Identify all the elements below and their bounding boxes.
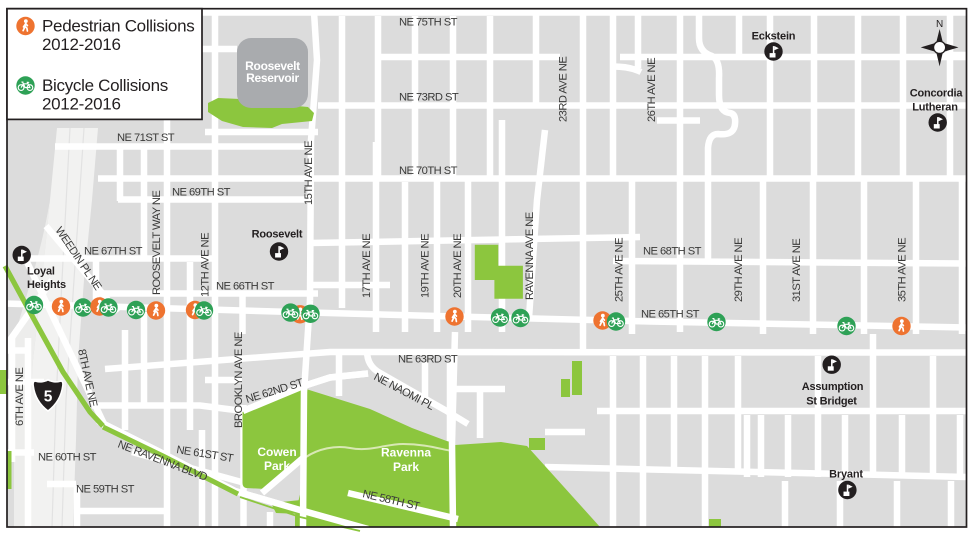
svg-text:Roosevelt: Roosevelt xyxy=(252,229,303,241)
svg-text:Bicycle Collisions: Bicycle Collisions xyxy=(42,76,168,95)
svg-text:25TH AVE NE: 25TH AVE NE xyxy=(614,238,626,302)
svg-text:NE 75TH ST: NE 75TH ST xyxy=(399,17,458,29)
svg-text:Assumption: Assumption xyxy=(802,381,864,393)
svg-text:35TH AVE NE: 35TH AVE NE xyxy=(897,238,909,302)
svg-text:Concordia: Concordia xyxy=(910,88,964,100)
svg-text:Cowen: Cowen xyxy=(257,445,296,459)
svg-text:NE 70TH ST: NE 70TH ST xyxy=(399,165,458,177)
svg-text:NE 69TH ST: NE 69TH ST xyxy=(172,187,231,199)
svg-text:Heights: Heights xyxy=(27,279,66,291)
svg-text:Eckstein: Eckstein xyxy=(752,31,796,43)
svg-text:St Bridget: St Bridget xyxy=(806,396,857,408)
svg-text:Reservoir: Reservoir xyxy=(246,71,299,85)
svg-text:NE 60TH ST: NE 60TH ST xyxy=(38,452,97,464)
svg-text:5: 5 xyxy=(44,389,53,406)
svg-text:Lutheran: Lutheran xyxy=(912,102,958,114)
svg-text:Park: Park xyxy=(264,459,290,473)
svg-text:Loyal: Loyal xyxy=(27,266,55,278)
svg-text:NE 59TH ST: NE 59TH ST xyxy=(76,484,135,496)
svg-text:RAVENNA AVE NE: RAVENNA AVE NE xyxy=(524,212,536,300)
svg-text:NE 66TH ST: NE 66TH ST xyxy=(216,281,275,293)
svg-text:NE 65TH ST: NE 65TH ST xyxy=(641,309,700,321)
svg-text:ROOSEVELT WAY NE: ROOSEVELT WAY NE xyxy=(151,191,163,295)
svg-text:NE 67TH ST: NE 67TH ST xyxy=(84,246,143,258)
svg-text:20TH AVE NE: 20TH AVE NE xyxy=(452,234,464,298)
svg-text:NE 73RD ST: NE 73RD ST xyxy=(399,92,459,104)
svg-text:17TH AVE NE: 17TH AVE NE xyxy=(361,234,373,298)
svg-text:12TH AVE NE: 12TH AVE NE xyxy=(200,233,212,297)
svg-text:15TH AVE NE: 15TH AVE NE xyxy=(303,141,315,205)
svg-text:19TH AVE NE: 19TH AVE NE xyxy=(420,234,432,298)
svg-text:Bryant: Bryant xyxy=(829,469,863,481)
svg-text:26TH AVE NE: 26TH AVE NE xyxy=(646,58,658,122)
svg-text:NE 68TH ST: NE 68TH ST xyxy=(643,246,702,258)
svg-text:Park: Park xyxy=(393,460,419,474)
svg-text:29TH AVE NE: 29TH AVE NE xyxy=(733,238,745,302)
svg-text:NE 63RD ST: NE 63RD ST xyxy=(398,354,458,366)
svg-text:N: N xyxy=(936,19,943,30)
svg-text:NE 71ST ST: NE 71ST ST xyxy=(117,132,175,144)
svg-text:2012-2016: 2012-2016 xyxy=(42,95,121,114)
svg-text:6TH AVE NE: 6TH AVE NE xyxy=(14,368,26,426)
svg-text:Ravenna: Ravenna xyxy=(381,446,431,460)
svg-text:23RD AVE NE: 23RD AVE NE xyxy=(558,57,570,122)
svg-text:31ST AVE NE: 31ST AVE NE xyxy=(791,239,803,302)
svg-text:Pedestrian Collisions: Pedestrian Collisions xyxy=(42,17,194,36)
svg-text:2012-2016: 2012-2016 xyxy=(42,35,121,54)
svg-text:BROOKLYN AVE NE: BROOKLYN AVE NE xyxy=(233,332,245,428)
